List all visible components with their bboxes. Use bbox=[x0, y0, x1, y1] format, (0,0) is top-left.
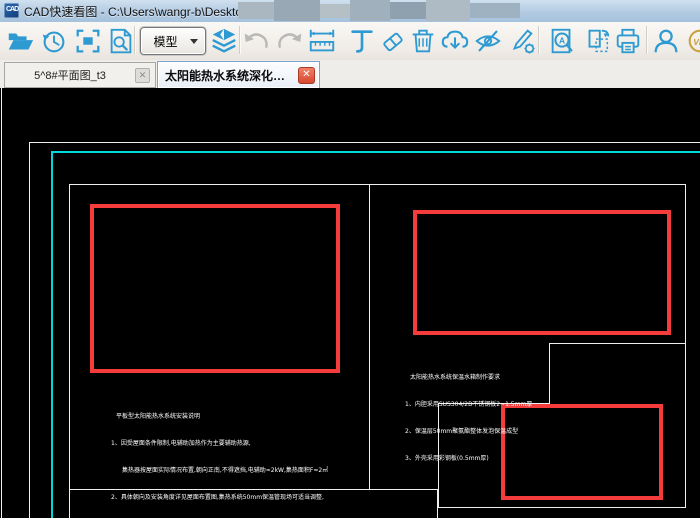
vip-button[interactable]: VIP bbox=[684, 25, 700, 57]
frame-line bbox=[29, 142, 700, 143]
eraser-icon bbox=[378, 26, 408, 56]
undo-button[interactable] bbox=[240, 25, 272, 57]
vip-icon: VIP bbox=[685, 26, 700, 56]
notes-title: 平板型太阳能热水系统安装说明 bbox=[111, 412, 328, 421]
zoom-extents-icon bbox=[73, 26, 103, 56]
user-icon bbox=[651, 26, 681, 56]
blurred-region bbox=[350, 0, 390, 21]
frame-line bbox=[1, 88, 2, 518]
frame-line bbox=[29, 142, 30, 518]
measure-ruler-icon bbox=[307, 26, 337, 56]
sheet-border bbox=[685, 184, 686, 508]
open-file-icon bbox=[5, 26, 35, 56]
user-account-button[interactable] bbox=[650, 25, 682, 57]
print-button[interactable] bbox=[612, 25, 644, 57]
sheet-border bbox=[69, 184, 686, 185]
markup-rectangle bbox=[90, 204, 340, 373]
tab-bar: 5^8#平面图_t3 ✕ 太阳能热水系统深化… ✕ bbox=[0, 60, 700, 88]
detail-box-line bbox=[549, 343, 550, 404]
close-icon[interactable]: ✕ bbox=[135, 68, 150, 83]
tab-floor-plan[interactable]: 5^8#平面图_t3 ✕ bbox=[4, 62, 156, 88]
find-text-button[interactable]: A bbox=[546, 25, 578, 57]
note-line: 集热器按屋面实际情况布置,朝向正南,不得遮挡,电辅助≈2kW,集热面积F≈2㎡ bbox=[111, 466, 328, 475]
tab-solar-system[interactable]: 太阳能热水系统深化… ✕ bbox=[157, 61, 320, 89]
layers-button[interactable] bbox=[208, 25, 240, 57]
hide-annotations-button[interactable] bbox=[472, 25, 504, 57]
measure-button[interactable] bbox=[306, 25, 338, 57]
markup-rectangle bbox=[413, 210, 671, 335]
toolbar: 模型 bbox=[0, 22, 700, 61]
app-icon: CAD bbox=[4, 3, 19, 18]
sheet-border bbox=[69, 184, 70, 518]
note-line: 1、内胆采用SUS304/2B不锈钢板2~1.5mm厚 bbox=[405, 400, 532, 409]
sheet-border bbox=[438, 507, 686, 508]
frame-line-cyan bbox=[51, 151, 53, 518]
model-selector[interactable]: 模型 bbox=[140, 27, 206, 55]
svg-text:A: A bbox=[559, 35, 565, 45]
rotate-view-button[interactable] bbox=[581, 25, 613, 57]
printer-icon bbox=[613, 26, 643, 56]
chevron-down-icon bbox=[190, 39, 198, 44]
delete-button[interactable] bbox=[407, 25, 439, 57]
rotate-page-icon bbox=[582, 26, 612, 56]
open-file-button[interactable] bbox=[4, 25, 36, 57]
panel-divider bbox=[369, 184, 370, 490]
note-line: 1、因受屋面条件限制,电辅助加热作为主要辅助热源, bbox=[111, 439, 328, 448]
history-button[interactable] bbox=[38, 25, 70, 57]
text-icon bbox=[347, 26, 377, 56]
notes-title: 太阳能热水系统保温水箱制作要求 bbox=[405, 373, 532, 382]
trash-icon bbox=[408, 26, 438, 56]
blurred-region bbox=[320, 4, 350, 18]
redo-icon bbox=[275, 26, 305, 56]
pen-gear-icon bbox=[507, 26, 537, 56]
layers-icon bbox=[209, 26, 239, 56]
detail-box-line bbox=[549, 343, 686, 344]
tab-label: 5^8#平面图_t3 bbox=[5, 67, 135, 83]
blurred-region bbox=[274, 0, 320, 21]
tab-label: 太阳能热水系统深化… bbox=[158, 67, 298, 84]
blurred-region bbox=[390, 2, 426, 19]
blurred-region bbox=[426, 0, 470, 21]
titlebar[interactable]: CAD CAD快速看图 - C:\Users\wangr-b\Deskto bbox=[0, 0, 700, 23]
window-title: CAD快速看图 - C:\Users\wangr-b\Deskto bbox=[24, 3, 242, 20]
svg-text:VIP: VIP bbox=[693, 37, 700, 47]
page-preview-icon bbox=[106, 26, 136, 56]
frame-line-cyan bbox=[51, 151, 700, 153]
text-annotate-button[interactable] bbox=[346, 25, 378, 57]
note-line: 2、保温层50mm聚氨酯整体发泡保温成型 bbox=[405, 427, 532, 436]
toolbar-separator bbox=[646, 26, 647, 54]
cloud-download-icon bbox=[440, 26, 470, 56]
notes-left: 平板型太阳能热水系统安装说明 1、因受屋面条件限制,电辅助加热作为主要辅助热源,… bbox=[111, 394, 328, 518]
close-icon[interactable]: ✕ bbox=[298, 67, 315, 84]
eraser-button[interactable] bbox=[377, 25, 409, 57]
history-clock-icon bbox=[39, 26, 69, 56]
toolbar-separator bbox=[538, 26, 539, 54]
note-line: 3、外壳采用彩钢板(0.5mm厚) bbox=[405, 454, 532, 463]
redo-button[interactable] bbox=[274, 25, 306, 57]
model-selector-value: 模型 bbox=[141, 33, 190, 50]
drawing-canvas[interactable]: 平板型太阳能热水系统安装说明 1、因受屋面条件限制,电辅助加热作为主要辅助热源,… bbox=[0, 88, 700, 518]
eye-slash-icon bbox=[473, 26, 503, 56]
draw-settings-button[interactable] bbox=[506, 25, 538, 57]
notes-right: 太阳能热水系统保温水箱制作要求 1、内胆采用SUS304/2B不锈钢板2~1.5… bbox=[405, 355, 532, 481]
blurred-region bbox=[470, 3, 520, 18]
toolbar-separator bbox=[134, 26, 135, 54]
zoom-extents-button[interactable] bbox=[72, 25, 104, 57]
note-line: 2、具体朝向及安装角度详见屋面布置图,集热系统50mm保温管现场可适当调整, bbox=[111, 493, 328, 502]
find-text-icon: A bbox=[547, 26, 577, 56]
page-preview-button[interactable] bbox=[105, 25, 137, 57]
cloud-download-button[interactable] bbox=[439, 25, 471, 57]
blurred-region bbox=[238, 2, 274, 19]
app-window: CAD CAD快速看图 - C:\Users\wangr-b\Deskto bbox=[0, 0, 700, 518]
undo-icon bbox=[241, 26, 271, 56]
